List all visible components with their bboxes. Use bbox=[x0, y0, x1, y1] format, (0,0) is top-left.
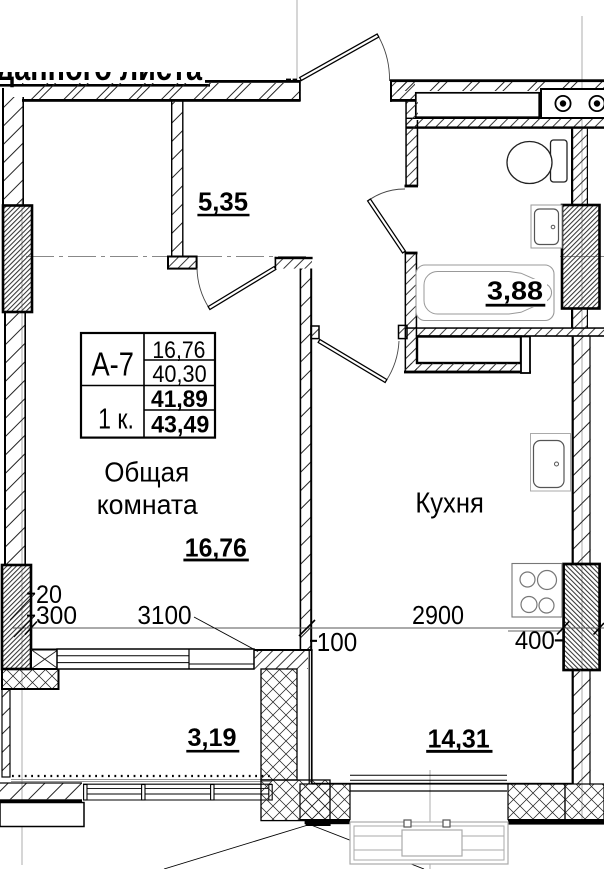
svg-text:40,30: 40,30 bbox=[152, 362, 206, 388]
svg-text:2900: 2900 bbox=[412, 600, 464, 630]
svg-text:16,76: 16,76 bbox=[152, 338, 205, 364]
svg-text:43,49: 43,49 bbox=[151, 412, 209, 438]
svg-text:3,19: 3,19 bbox=[188, 724, 237, 752]
svg-text:Кухня: Кухня bbox=[415, 488, 484, 520]
svg-text:комната: комната bbox=[97, 489, 199, 520]
svg-text:3100: 3100 bbox=[137, 600, 191, 630]
svg-text:14,31: 14,31 bbox=[428, 726, 490, 754]
svg-text:400: 400 bbox=[515, 627, 555, 655]
svg-text:100: 100 bbox=[317, 627, 357, 657]
svg-text:300: 300 bbox=[36, 603, 77, 630]
svg-text:Общая: Общая bbox=[104, 457, 189, 488]
svg-text:41,89: 41,89 bbox=[151, 387, 208, 413]
svg-text:1 к.: 1 к. bbox=[98, 404, 134, 436]
svg-text:5,35: 5,35 bbox=[198, 189, 248, 217]
svg-text:3,88: 3,88 bbox=[487, 278, 543, 306]
svg-text:16,76: 16,76 bbox=[185, 535, 247, 563]
svg-text:А-7: А-7 bbox=[92, 345, 134, 382]
